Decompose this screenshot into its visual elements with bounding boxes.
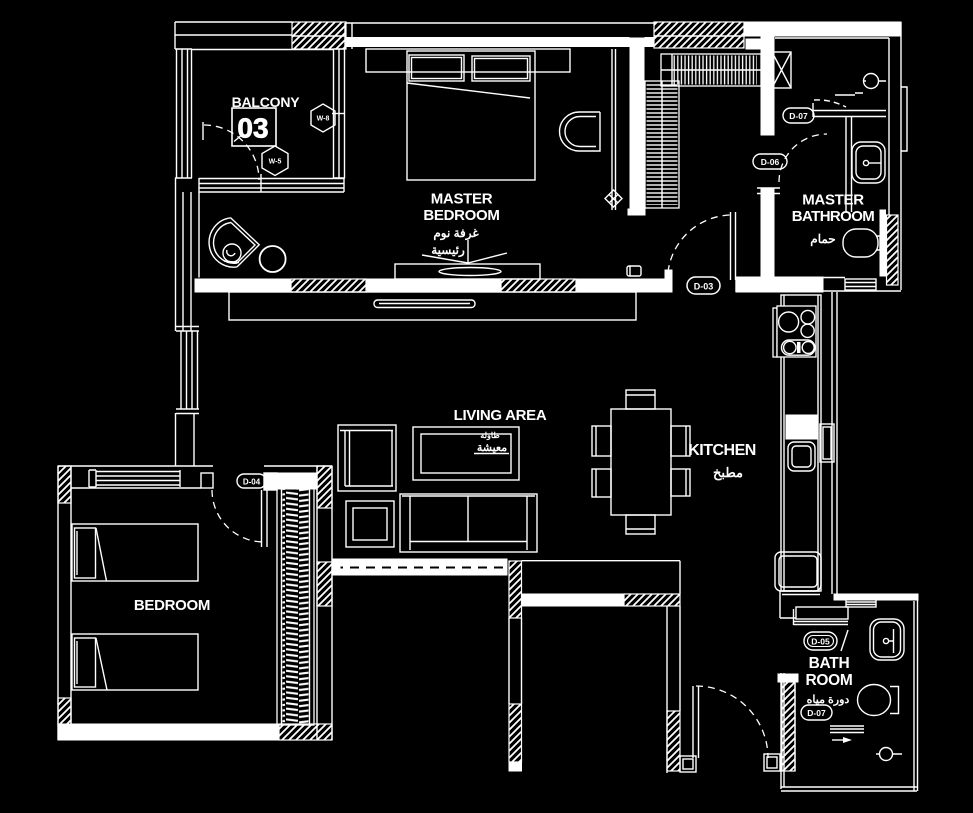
svg-text:D-07: D-07 (789, 111, 808, 121)
svg-text:BATH: BATH (809, 655, 850, 672)
svg-text:D-03: D-03 (694, 282, 714, 292)
svg-text:D-05: D-05 (811, 637, 830, 647)
svg-text:مطبخ: مطبخ (713, 465, 743, 481)
svg-text:BEDROOM: BEDROOM (134, 597, 210, 614)
svg-text:BEDROOM: BEDROOM (423, 207, 499, 224)
svg-text:D-04: D-04 (243, 478, 261, 487)
svg-text:معيشة: معيشة (477, 442, 507, 454)
svg-text:طاولة: طاولة (480, 431, 499, 441)
svg-text:MASTER: MASTER (802, 192, 864, 209)
svg-text:D-06: D-06 (761, 157, 780, 167)
svg-text:غرفة نوم: غرفة نوم (433, 226, 479, 241)
svg-text:KITCHEN: KITCHEN (688, 442, 756, 459)
svg-text:D-07: D-07 (807, 708, 826, 718)
svg-text:MASTER: MASTER (431, 191, 493, 208)
svg-text:رئيسية: رئيسية (431, 243, 465, 258)
svg-text:دورة مياه: دورة مياه (807, 694, 850, 706)
svg-text:W-5: W-5 (269, 159, 282, 166)
svg-text:حمام: حمام (810, 232, 835, 247)
svg-text:LIVING AREA: LIVING AREA (454, 407, 547, 424)
svg-text:03: 03 (237, 113, 268, 144)
svg-text:ROOM: ROOM (805, 672, 852, 689)
svg-text:W-8: W-8 (317, 116, 330, 123)
svg-text:BATHROOM: BATHROOM (792, 208, 875, 225)
